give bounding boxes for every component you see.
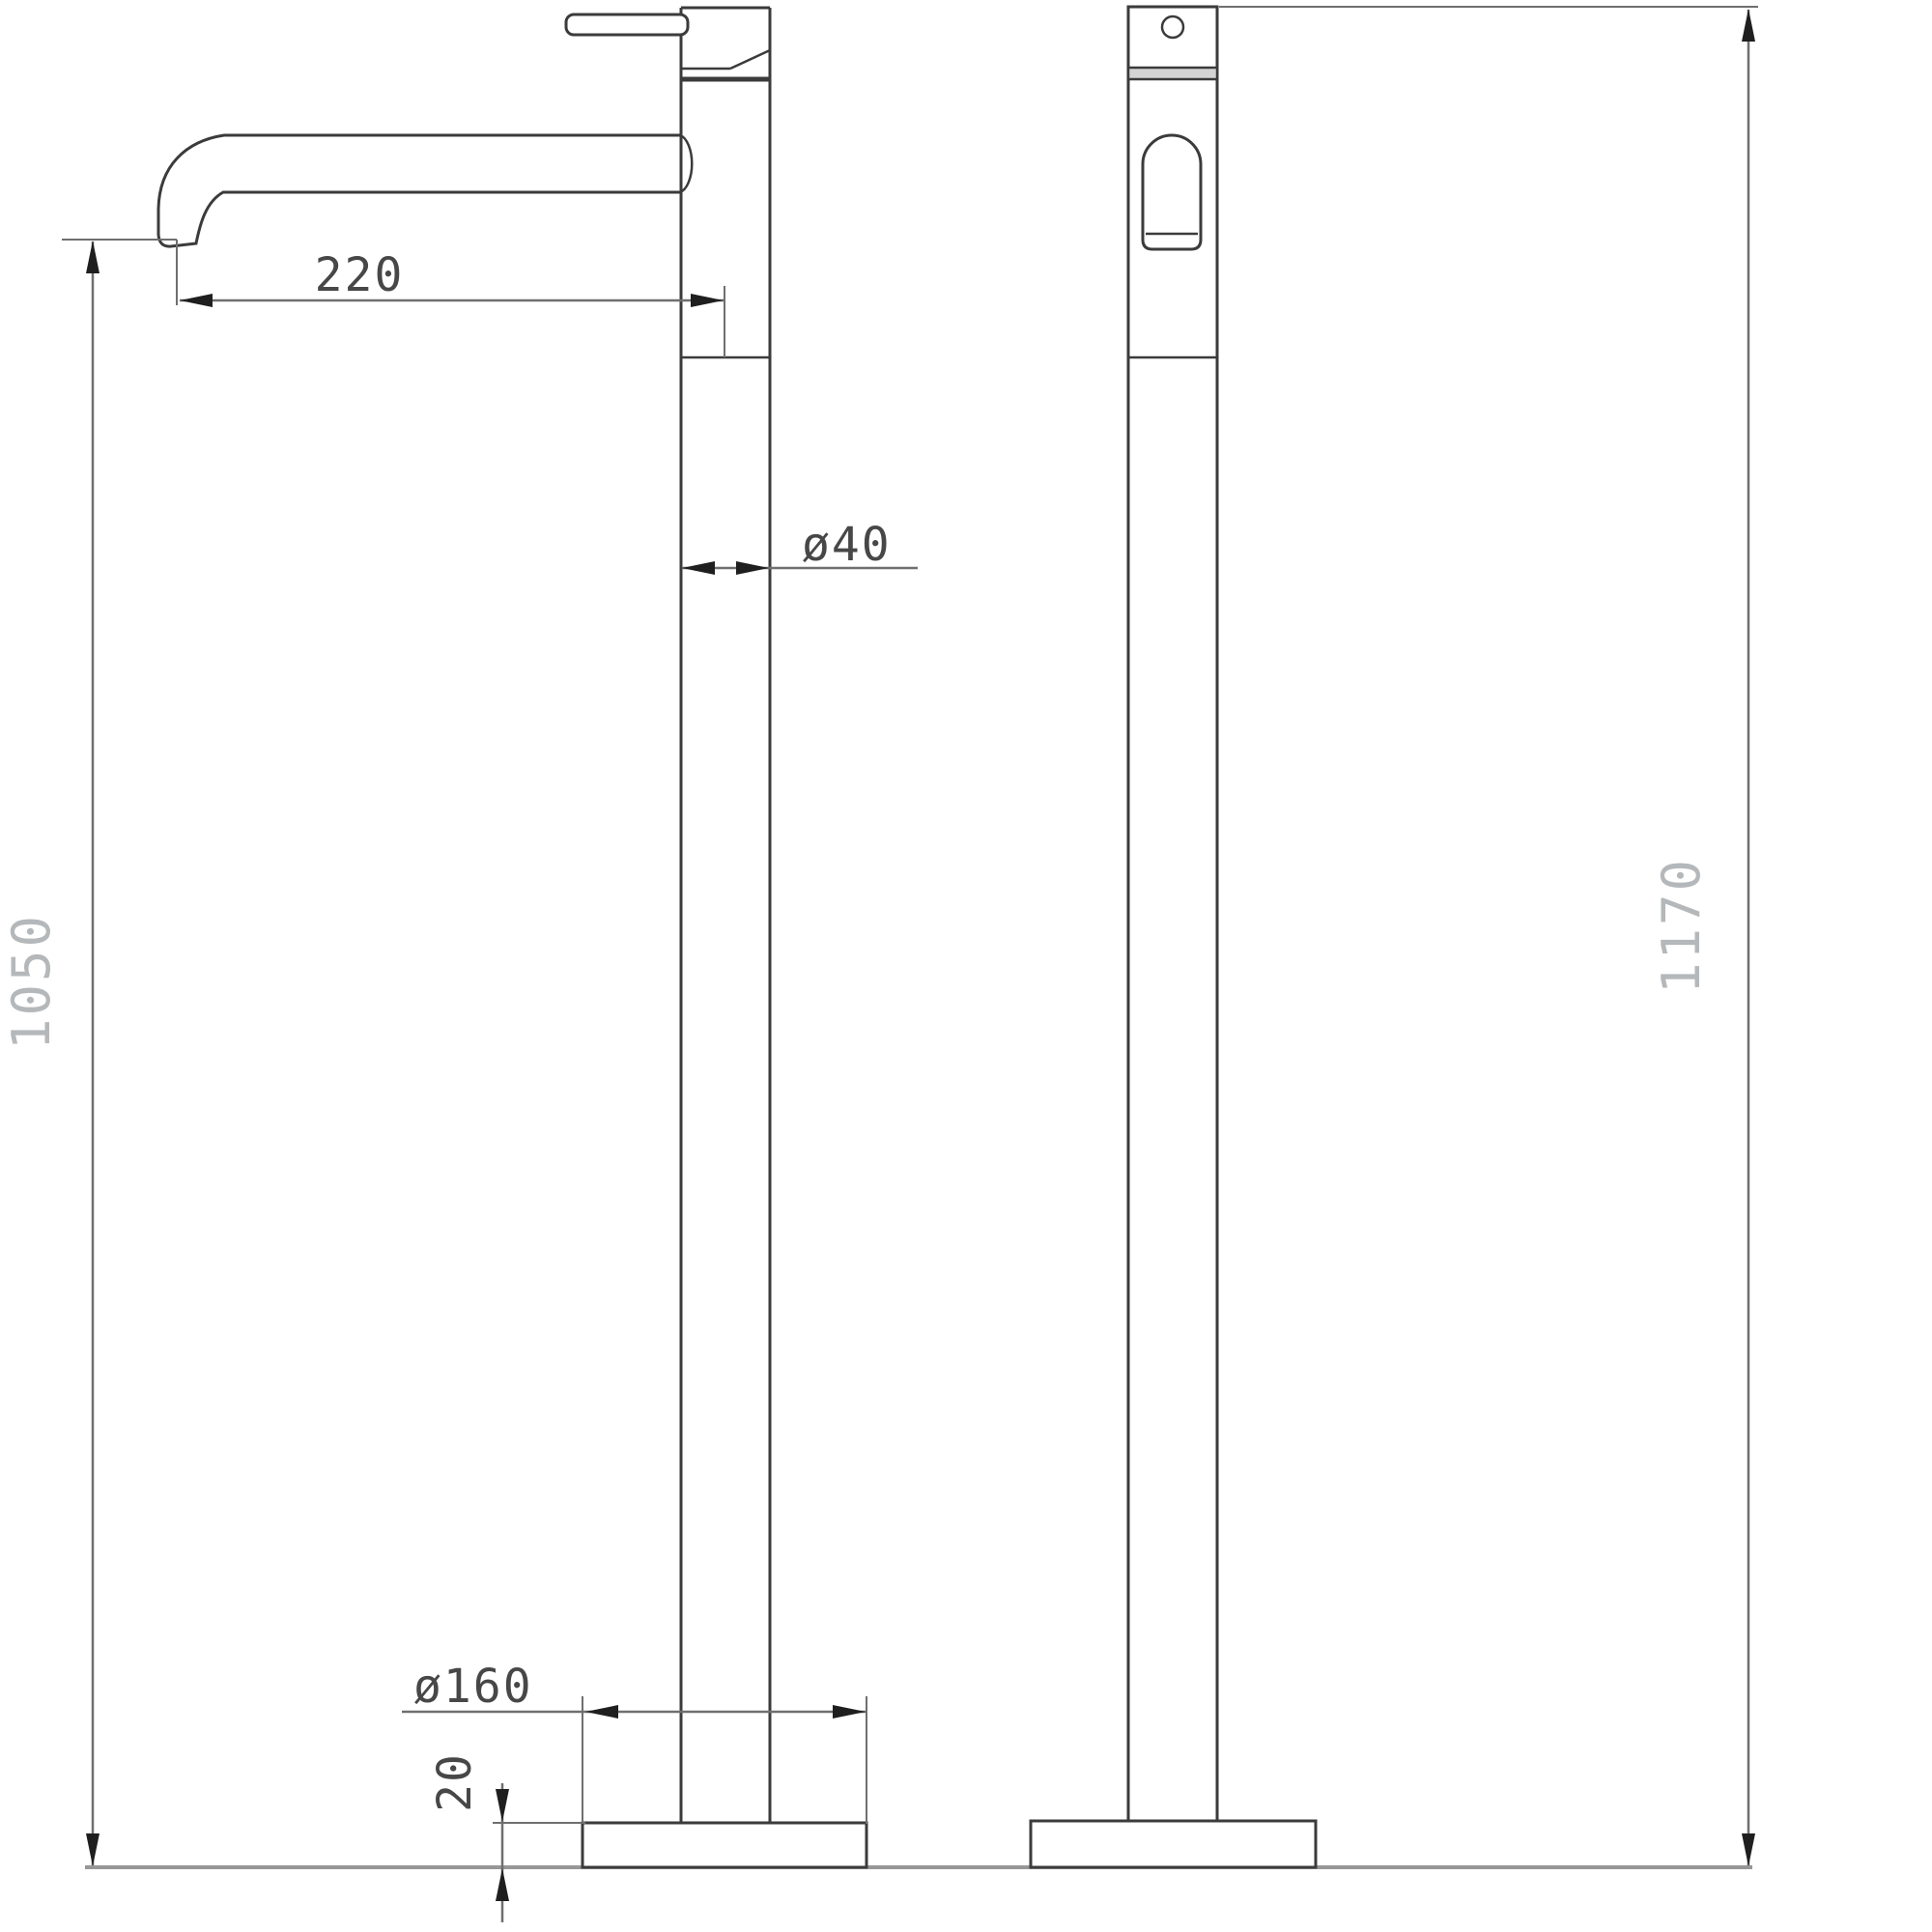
front-lever-handle: [566, 14, 688, 35]
dim-label-dia160: ø160: [413, 1660, 533, 1714]
side-collar-band: [1128, 68, 1217, 79]
arrow-up-icon: [86, 241, 99, 273]
arrow-left-icon: [585, 1705, 618, 1719]
arrow-left-icon: [180, 294, 213, 307]
arrow-down-icon: [1742, 1833, 1755, 1866]
front-base-plate: [582, 1823, 867, 1867]
dim-label-20: 20: [428, 1752, 482, 1812]
dimension-base-height: 20: [428, 1752, 585, 1922]
side-base-plate: [1031, 1821, 1316, 1867]
dim-label-1170: 1170: [1651, 857, 1712, 994]
side-column-shaft: [1128, 7, 1217, 1821]
tap-dimension-drawing: 1050 220 ø40 ø160 20 1170: [0, 0, 1932, 1932]
front-view: [158, 8, 867, 1867]
side-view: [1031, 7, 1316, 1867]
front-spout-outline: [158, 135, 680, 246]
arrow-right-icon: [833, 1705, 866, 1719]
dimension-total-height: 1170: [1219, 7, 1758, 1866]
arrow-up-icon: [496, 1868, 509, 1901]
dome-slant-line: [730, 50, 770, 69]
dim-label-dia40: ø40: [802, 518, 892, 572]
dim-label-1050: 1050: [1, 913, 62, 1050]
arrow-down-icon: [496, 1789, 509, 1822]
front-handle-dome: [681, 8, 770, 80]
arrow-down-icon: [86, 1833, 99, 1866]
dimension-spout-height: 1050: [1, 240, 177, 1866]
arrow-up-icon: [1742, 9, 1755, 42]
dim-label-220: 220: [315, 248, 405, 302]
technical-drawing-canvas: 1050 220 ø40 ø160 20 1170: [0, 0, 1932, 1932]
dimension-spout-reach: 220: [177, 240, 724, 357]
